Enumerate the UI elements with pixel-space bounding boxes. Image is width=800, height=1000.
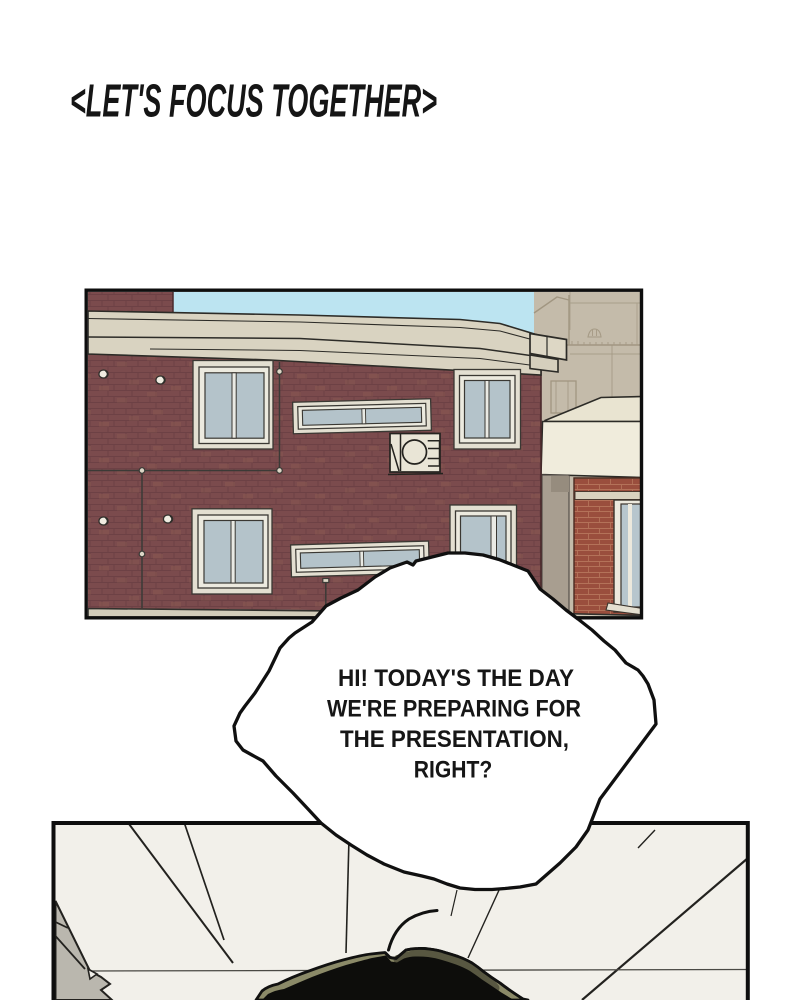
- svg-text:RIGHT?: RIGHT?: [414, 757, 493, 784]
- svg-text:WE'RE PREPARING FOR: WE'RE PREPARING FOR: [327, 696, 581, 723]
- svg-text:<LET'S FOCUS TOGETHER>: <LET'S FOCUS TOGETHER>: [70, 75, 437, 127]
- svg-text:HI! TODAY'S THE DAY: HI! TODAY'S THE DAY: [338, 665, 574, 692]
- svg-text:THE PRESENTATION,: THE PRESENTATION,: [340, 726, 569, 753]
